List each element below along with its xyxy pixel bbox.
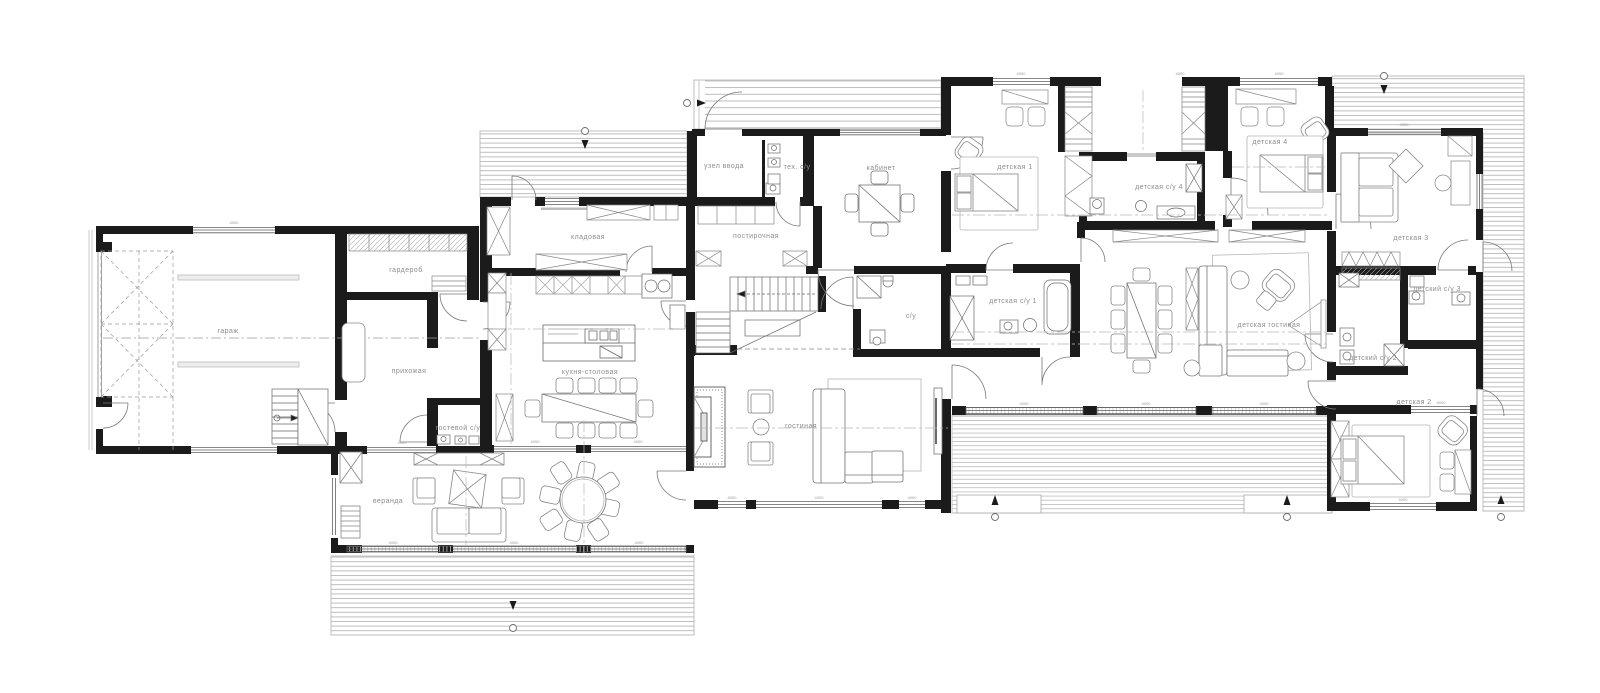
- svg-text:узел ввода: узел ввода: [704, 163, 744, 170]
- svg-text:детская гостиная: детская гостиная: [1238, 322, 1301, 329]
- svg-text:с/у: с/у: [906, 313, 916, 320]
- svg-text:4000: 4000: [1017, 71, 1027, 76]
- svg-text:детская 2: детская 2: [1396, 399, 1431, 406]
- svg-text:4000: 4000: [1437, 400, 1447, 405]
- svg-text:гараж: гараж: [217, 328, 238, 335]
- svg-text:4000: 4000: [815, 495, 825, 500]
- svg-text:4000: 4000: [510, 540, 520, 545]
- svg-text:4000: 4000: [1260, 401, 1270, 406]
- svg-text:4000: 4000: [1399, 497, 1409, 502]
- svg-text:постирочная: постирочная: [733, 233, 779, 240]
- svg-text:гостевой с/у: гостевой с/у: [436, 424, 481, 432]
- svg-text:4000: 4000: [1400, 122, 1410, 127]
- svg-text:4000: 4000: [398, 440, 408, 445]
- svg-text:гардероб: гардероб: [389, 266, 422, 274]
- svg-text:гостиная: гостиная: [785, 423, 817, 430]
- svg-text:4000: 4000: [1142, 401, 1152, 406]
- svg-text:4000: 4000: [1275, 71, 1285, 76]
- svg-text:4000: 4000: [531, 439, 541, 444]
- svg-text:детская 1: детская 1: [997, 164, 1032, 171]
- svg-text:тех. с/у: тех. с/у: [784, 164, 811, 171]
- svg-text:4000: 4000: [230, 220, 240, 225]
- svg-text:4000: 4000: [728, 495, 738, 500]
- svg-text:кладовая: кладовая: [571, 234, 605, 241]
- svg-text:веранда: веранда: [373, 498, 403, 505]
- svg-text:4000: 4000: [389, 540, 399, 545]
- svg-text:детская с/у 4: детская с/у 4: [1135, 184, 1183, 191]
- svg-text:4000: 4000: [908, 495, 918, 500]
- svg-text:4000: 4000: [1176, 71, 1186, 76]
- svg-text:4000: 4000: [1020, 401, 1030, 406]
- svg-text:детская с/у 1: детская с/у 1: [989, 298, 1037, 305]
- svg-text:кухня-столовая: кухня-столовая: [562, 369, 618, 376]
- svg-text:4000: 4000: [635, 540, 645, 545]
- svg-text:детский с/у 2: детский с/у 2: [1349, 354, 1397, 362]
- svg-text:детская 3: детская 3: [1393, 235, 1428, 242]
- svg-text:кабинет: кабинет: [867, 164, 896, 172]
- svg-text:4000: 4000: [634, 439, 644, 444]
- svg-text:детский с/у 3: детский с/у 3: [1413, 285, 1461, 293]
- svg-text:детская 4: детская 4: [1252, 139, 1287, 146]
- svg-text:прихожая: прихожая: [392, 368, 427, 375]
